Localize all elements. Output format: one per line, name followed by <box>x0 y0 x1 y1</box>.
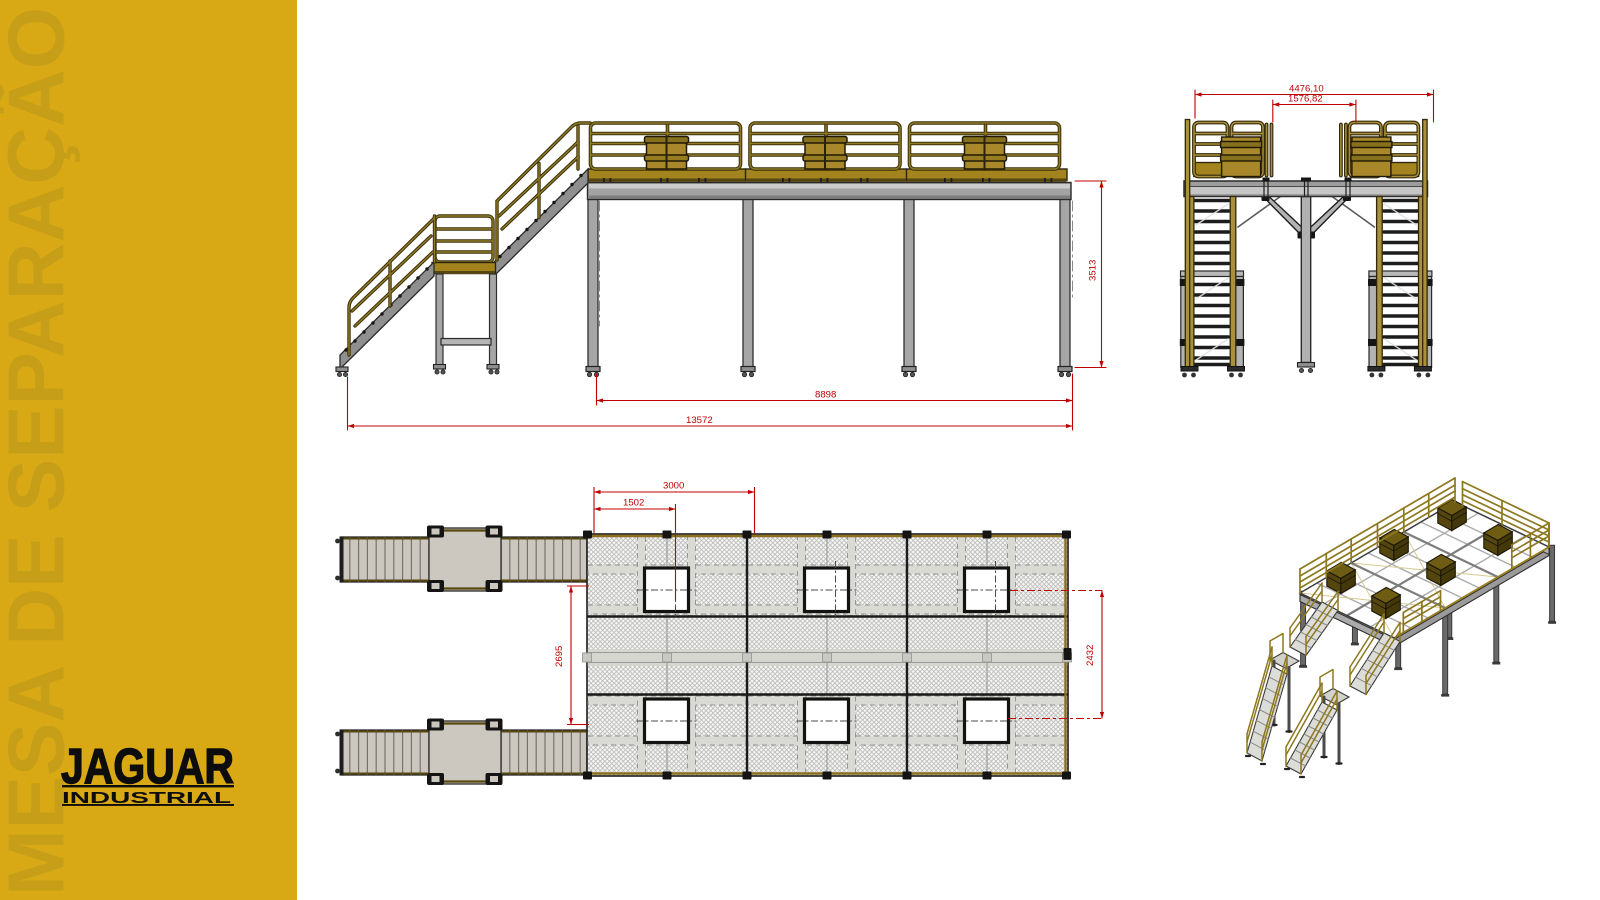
svg-text:1502: 1502 <box>623 498 644 509</box>
svg-text:8898: 8898 <box>815 390 836 401</box>
svg-text:1576,82: 1576,82 <box>1288 94 1323 105</box>
svg-text:3513: 3513 <box>1088 260 1099 281</box>
svg-text:13572: 13572 <box>686 415 713 426</box>
svg-text:3000: 3000 <box>663 481 684 492</box>
svg-text:2695: 2695 <box>554 646 565 667</box>
svg-text:2432: 2432 <box>1085 645 1096 666</box>
